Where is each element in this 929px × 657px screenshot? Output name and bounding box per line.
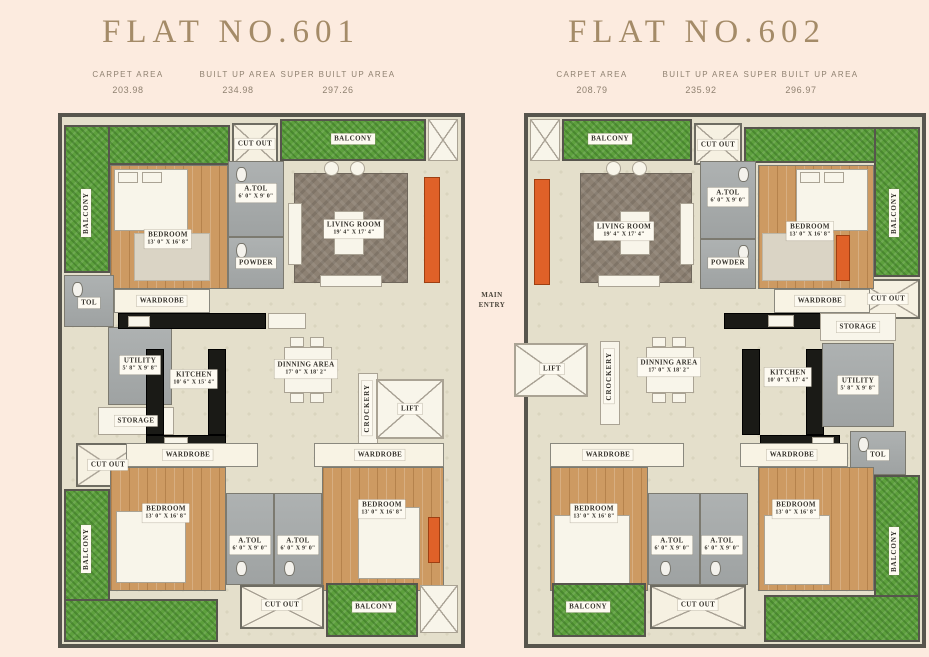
storage-label: STORAGE bbox=[115, 415, 158, 426]
living-dim: 19' 4" X 17' 4" bbox=[327, 230, 381, 238]
flat-602-floorplan: BALCONY CUT OUT BALCONY CUT OUT LIVING R… bbox=[524, 113, 926, 648]
living-room-label: LIVING ROOM 19' 4" X 17' 4" bbox=[324, 220, 384, 239]
kitchen-counter bbox=[208, 349, 226, 435]
dining-dim: 17' 0" X 18' 2" bbox=[640, 368, 697, 376]
pillow bbox=[800, 172, 820, 183]
bench bbox=[320, 275, 382, 287]
lift-label: LIFT bbox=[540, 363, 564, 374]
atol-name: A.TOL bbox=[711, 189, 746, 198]
wardrobe-label: WARDROBE bbox=[137, 295, 187, 306]
utility-name: UTILITY bbox=[123, 357, 158, 366]
bed bbox=[764, 515, 830, 585]
atol-dim: 6' 0" X 9' 0" bbox=[239, 194, 274, 202]
attached-toilet-1-label: A.TOL 6' 0" X 9' 0" bbox=[236, 184, 277, 203]
bedroom-2-label: BEDROOM 13' 0" X 16' 8" bbox=[142, 504, 189, 523]
cut-out-text: CUT OUT bbox=[238, 139, 272, 148]
cut-out-label: CUT OUT bbox=[262, 599, 302, 610]
bedroom-dim: 13' 0" X 16' 8" bbox=[775, 510, 816, 518]
attached-toilet-1-label: A.TOL 6' 0" X 9' 0" bbox=[708, 188, 749, 207]
flat-602-carpet-area: CARPET AREA 208.79 bbox=[556, 70, 627, 95]
cut-out-text: CUT OUT bbox=[91, 460, 125, 469]
chair bbox=[672, 337, 686, 347]
balcony-text: BALCONY bbox=[569, 602, 607, 611]
bedroom-1-label: BEDROOM 13' 0" X 16' 8" bbox=[144, 230, 191, 249]
bedroom-name: BEDROOM bbox=[775, 501, 816, 510]
service-shaft bbox=[530, 119, 560, 161]
wardrobe-text: WARDROBE bbox=[166, 450, 210, 459]
flat-601-title: FLAT NO.601 bbox=[31, 14, 431, 51]
chair bbox=[606, 161, 621, 176]
super-built-up-area-value: 296.97 bbox=[743, 85, 858, 95]
bedroom-dim: 13' 0" X 16' 8" bbox=[147, 240, 188, 248]
flat-602-built-up-area: BUILT UP AREA 235.92 bbox=[663, 70, 740, 95]
kitchen-name: KITCHEN bbox=[767, 369, 808, 378]
bedroom-dim: 13' 0" X 16' 8" bbox=[145, 514, 186, 522]
bench bbox=[598, 275, 660, 287]
dining-dim: 17' 0" X 18' 2" bbox=[277, 370, 334, 378]
carpet-area-value: 203.98 bbox=[92, 85, 163, 95]
cut-out-text: CUT OUT bbox=[681, 600, 715, 609]
dining-area-label: DINNING AREA 17' 0" X 18' 2" bbox=[637, 358, 700, 377]
wardrobe-label: WARDROBE bbox=[767, 449, 817, 460]
sink-icon bbox=[128, 316, 150, 327]
atol-name: A.TOL bbox=[655, 537, 690, 546]
carpet-area-value: 208.79 bbox=[556, 85, 627, 95]
cut-out-text: CUT OUT bbox=[701, 140, 735, 149]
powder-label: POWDER bbox=[236, 257, 276, 268]
balcony-text: BALCONY bbox=[591, 134, 629, 143]
pillow bbox=[142, 172, 162, 183]
powder-text: POWDER bbox=[239, 258, 273, 267]
bed bbox=[554, 515, 630, 585]
toilet-icon bbox=[72, 282, 83, 297]
bedroom-dim: 13' 0" X 16' 8" bbox=[573, 514, 614, 522]
attached-toilet-2-label: A.TOL 6' 0" X 9' 0" bbox=[230, 536, 271, 555]
bedroom-name: BEDROOM bbox=[147, 231, 188, 240]
attached-toilet-2-label: A.TOL 6' 0" X 9' 0" bbox=[652, 536, 693, 555]
cut-out-label: CUT OUT bbox=[88, 459, 128, 470]
super-built-up-area-label: SUPER BUILT UP AREA bbox=[280, 70, 395, 79]
balcony-label: BALCONY bbox=[81, 525, 91, 573]
dining-name: DINNING AREA bbox=[277, 361, 334, 370]
cut-out-label: CUT OUT bbox=[698, 139, 738, 150]
chair bbox=[652, 393, 666, 403]
kitchen-label: KITCHEN 10' 0" X 17' 4" bbox=[764, 368, 811, 387]
atol-dim: 6' 0" X 9' 0" bbox=[281, 546, 316, 554]
balcony-label: BALCONY bbox=[588, 133, 632, 144]
lift-text: LIFT bbox=[401, 404, 419, 413]
attached-toilet-3-label: A.TOL 6' 0" X 9' 0" bbox=[278, 536, 319, 555]
toilet-icon bbox=[660, 561, 671, 576]
storage-text: STORAGE bbox=[840, 322, 877, 331]
stove-icon bbox=[768, 315, 794, 327]
bedroom-dim: 13' 0" X 16' 8" bbox=[361, 510, 402, 518]
chair bbox=[290, 337, 304, 347]
attached-toilet-3-label: A.TOL 6' 0" X 9' 0" bbox=[702, 536, 743, 555]
super-built-up-area-value: 297.26 bbox=[280, 85, 395, 95]
flat-601-built-up-area: BUILT UP AREA 234.98 bbox=[200, 70, 277, 95]
chair bbox=[350, 161, 365, 176]
chair bbox=[632, 161, 647, 176]
dining-area-label: DINNING AREA 17' 0" X 18' 2" bbox=[274, 360, 337, 379]
chair bbox=[290, 393, 304, 403]
balcony-label: BALCONY bbox=[352, 601, 396, 612]
bedroom-1-label: BEDROOM 13' 0" X 16' 8" bbox=[786, 222, 833, 241]
carpet-area-label: CARPET AREA bbox=[92, 70, 163, 79]
wardrobe-text: WARDROBE bbox=[586, 450, 630, 459]
service-shaft bbox=[420, 585, 458, 633]
wardrobe-label: WARDROBE bbox=[163, 449, 213, 460]
flat-601-carpet-area: CARPET AREA 203.98 bbox=[92, 70, 163, 95]
tv-unit bbox=[836, 235, 850, 281]
toilet-icon bbox=[236, 167, 247, 182]
atol-name: A.TOL bbox=[233, 537, 268, 546]
balcony-text: BALCONY bbox=[334, 134, 372, 143]
chair bbox=[652, 337, 666, 347]
kitchen-dim: 10' 6" X 15' 4" bbox=[173, 380, 214, 388]
bedroom-2-label: BEDROOM 13' 0" X 16' 8" bbox=[570, 504, 617, 523]
cut-out-text: CUT OUT bbox=[265, 600, 299, 609]
balcony-bottom-left-band bbox=[64, 599, 218, 642]
living-room-label: LIVING ROOM 19' 4" X 17' 4" bbox=[594, 222, 654, 241]
tv-unit bbox=[428, 517, 440, 563]
balcony-bottom-right-band bbox=[764, 595, 920, 642]
tv-unit bbox=[534, 179, 550, 285]
living-name: LIVING ROOM bbox=[327, 221, 381, 230]
flat-602-title: FLAT NO.602 bbox=[497, 14, 897, 51]
toilet-label: TOL bbox=[867, 449, 889, 460]
toilet-icon bbox=[284, 561, 295, 576]
atol-name: A.TOL bbox=[239, 185, 274, 194]
utility-dim: 5' 8" X 9' 8" bbox=[841, 386, 876, 394]
cut-out-label: CUT OUT bbox=[678, 599, 718, 610]
atol-name: A.TOL bbox=[705, 537, 740, 546]
cut-out-label: CUT OUT bbox=[235, 138, 275, 149]
chair bbox=[672, 393, 686, 403]
chair bbox=[324, 161, 339, 176]
toilet-icon bbox=[236, 243, 247, 258]
storage-text: STORAGE bbox=[118, 416, 155, 425]
cut-out-text: CUT OUT bbox=[871, 294, 905, 303]
atol-dim: 6' 0" X 9' 0" bbox=[705, 546, 740, 554]
balcony-label: BALCONY bbox=[889, 189, 899, 237]
bedroom-name: BEDROOM bbox=[145, 505, 186, 514]
balcony-text: BALCONY bbox=[355, 602, 393, 611]
kitchen-counter bbox=[742, 349, 760, 435]
kitchen-name: KITCHEN bbox=[173, 371, 214, 380]
chair bbox=[310, 393, 324, 403]
cut-out-label: CUT OUT bbox=[868, 293, 908, 304]
chair bbox=[310, 337, 324, 347]
storage-label: STORAGE bbox=[837, 321, 880, 332]
wardrobe-text: WARDROBE bbox=[140, 296, 184, 305]
atol-dim: 6' 0" X 9' 0" bbox=[655, 546, 690, 554]
built-up-area-label: BUILT UP AREA bbox=[663, 70, 740, 79]
kitchen-label: KITCHEN 10' 6" X 15' 4" bbox=[170, 370, 217, 389]
flat-601-floorplan: BALCONY CUT OUT BALCONY BEDROOM 13' 0" X… bbox=[58, 113, 465, 648]
carpet-area-label: CARPET AREA bbox=[556, 70, 627, 79]
utility-label: UTILITY 5' 8" X 9' 8" bbox=[838, 376, 879, 395]
pillow bbox=[118, 172, 138, 183]
bedroom-name: BEDROOM bbox=[361, 501, 402, 510]
built-up-area-value: 235.92 bbox=[663, 85, 740, 95]
tol-text: TOL bbox=[81, 298, 97, 307]
balcony-label: BALCONY bbox=[889, 527, 899, 575]
fridge bbox=[268, 313, 306, 329]
wardrobe-text: WARDROBE bbox=[798, 296, 842, 305]
tv-unit bbox=[424, 177, 440, 283]
sofa bbox=[680, 203, 694, 265]
main-entry-label: MAIN ENTRY bbox=[470, 291, 514, 311]
wardrobe-text: WARDROBE bbox=[770, 450, 814, 459]
utility-name: UTILITY bbox=[841, 377, 876, 386]
built-up-area-label: BUILT UP AREA bbox=[200, 70, 277, 79]
bedroom-3-label: BEDROOM 13' 0" X 16' 8" bbox=[358, 500, 405, 519]
wardrobe-label: WARDROBE bbox=[583, 449, 633, 460]
toilet-label: TOL bbox=[78, 297, 100, 308]
utility-dim: 5' 8" X 9' 8" bbox=[123, 366, 158, 374]
sofa bbox=[288, 203, 302, 265]
floorplan-page: { "flats": [ { "title": "FLAT NO.601", "… bbox=[0, 0, 929, 657]
bedroom-dim: 13' 0" X 16' 8" bbox=[789, 232, 830, 240]
crockery-label: CROCKERY bbox=[604, 349, 614, 404]
atol-dim: 6' 0" X 9' 0" bbox=[233, 546, 268, 554]
dining-name: DINNING AREA bbox=[640, 359, 697, 368]
wardrobe-text: WARDROBE bbox=[358, 450, 402, 459]
tol-text: TOL bbox=[870, 450, 886, 459]
service-shaft bbox=[428, 119, 458, 161]
bedroom-name: BEDROOM bbox=[573, 505, 614, 514]
flat-601-super-built-up-area: SUPER BUILT UP AREA 297.26 bbox=[280, 70, 395, 95]
utility-label: UTILITY 5' 8" X 9' 8" bbox=[120, 356, 161, 375]
pillow bbox=[824, 172, 844, 183]
super-built-up-area-label: SUPER BUILT UP AREA bbox=[743, 70, 858, 79]
bedroom-3-label: BEDROOM 13' 0" X 16' 8" bbox=[772, 500, 819, 519]
living-name: LIVING ROOM bbox=[597, 223, 651, 232]
atol-name: A.TOL bbox=[281, 537, 316, 546]
lift-text: LIFT bbox=[543, 364, 561, 373]
toilet-icon bbox=[738, 167, 749, 182]
powder-text: POWDER bbox=[711, 258, 745, 267]
balcony-label: BALCONY bbox=[566, 601, 610, 612]
crockery-label: CROCKERY bbox=[362, 381, 372, 436]
balcony-label: BALCONY bbox=[81, 189, 91, 237]
toilet-icon bbox=[236, 561, 247, 576]
wardrobe-label: WARDROBE bbox=[795, 295, 845, 306]
kitchen-dim: 10' 0" X 17' 4" bbox=[767, 378, 808, 386]
powder-label: POWDER bbox=[708, 257, 748, 268]
wardrobe-label: WARDROBE bbox=[355, 449, 405, 460]
balcony-label: BALCONY bbox=[331, 133, 375, 144]
lift-label: LIFT bbox=[398, 403, 422, 414]
flat-602-super-built-up-area: SUPER BUILT UP AREA 296.97 bbox=[743, 70, 858, 95]
atol-dim: 6' 0" X 9' 0" bbox=[711, 198, 746, 206]
living-dim: 19' 4" X 17' 4" bbox=[597, 232, 651, 240]
built-up-area-value: 234.98 bbox=[200, 85, 277, 95]
bedroom-name: BEDROOM bbox=[789, 223, 830, 232]
toilet-icon bbox=[710, 561, 721, 576]
